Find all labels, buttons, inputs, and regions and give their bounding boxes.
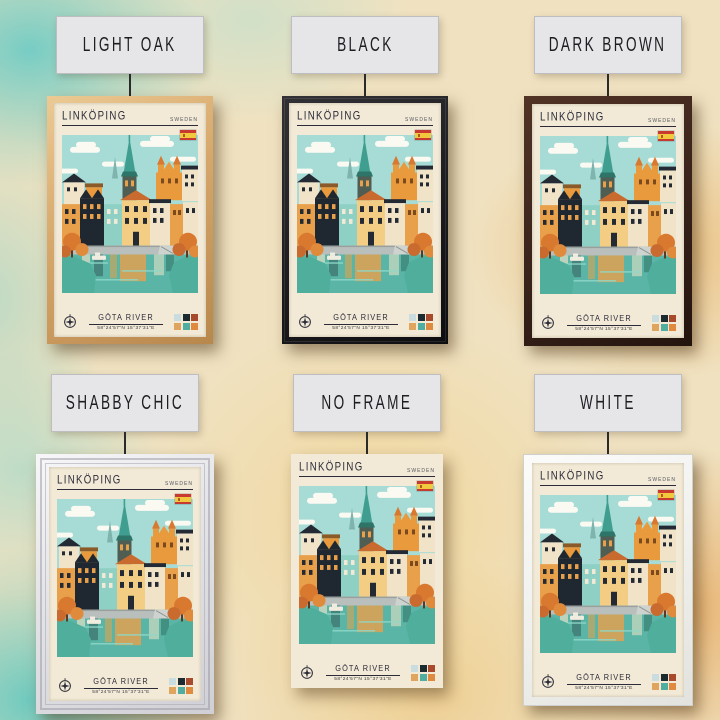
compass-icon [299, 665, 315, 681]
palette-swatch [183, 314, 190, 321]
poster-cell-none: NO FRAME LINKÖPING SWEDEN [278, 374, 456, 688]
poster-country: SWEDEN [648, 477, 676, 483]
spain-flag-icon [417, 481, 433, 491]
poster-frame: LINKÖPING SWEDEN [291, 454, 443, 688]
palette-swatch [661, 315, 668, 322]
poster-caption: GÖTA RIVER 58°24'57"N 15°37'31"E [316, 313, 406, 331]
palette-swatch [661, 324, 668, 331]
palette-swatches [174, 314, 198, 330]
poster-caption: GÖTA RIVER 58°24'57"N 15°37'31"E [76, 677, 166, 695]
poster-coordinates: 58°24'57"N 15°37'31"E [559, 686, 649, 691]
palette-swatch [420, 674, 427, 681]
palette-swatch [652, 315, 659, 322]
cityscape-illustration [297, 135, 433, 293]
poster-header: LINKÖPING SWEDEN [540, 112, 676, 127]
cityscape-illustration [57, 499, 193, 657]
poster-coordinates: 58°24'57"N 15°37'31"E [81, 326, 171, 331]
palette-swatch [411, 665, 418, 672]
hanging-wire [366, 432, 368, 454]
palette-swatch [428, 674, 435, 681]
poster-paper: LINKÖPING SWEDEN [54, 103, 206, 337]
palette-swatch [420, 665, 427, 672]
product-collage: LIGHT OAK LINKÖPING SWEDEN [0, 0, 720, 720]
cityscape-illustration [540, 136, 676, 294]
compass-icon [62, 314, 78, 330]
palette-swatch [178, 687, 185, 694]
palette-swatch [178, 678, 185, 685]
cityscape-illustration [299, 486, 435, 644]
variant-label: SHABBY CHIC [66, 391, 184, 415]
poster-header: LINKÖPING SWEDEN [297, 111, 433, 126]
poster-country: SWEDEN [165, 481, 193, 487]
poster-cell-dark-brown: DARK BROWN LINKÖPING SWEDEN [519, 16, 697, 346]
palette-swatch [652, 683, 659, 690]
poster-paper: LINKÖPING SWEDEN [532, 463, 684, 697]
palette-swatch [669, 324, 676, 331]
poster-coordinates: 58°24'57"N 15°37'31"E [559, 327, 649, 332]
palette-swatch [186, 678, 193, 685]
variant-label-box: SHABBY CHIC [51, 374, 199, 432]
poster-header: LINKÖPING SWEDEN [62, 111, 198, 126]
compass-icon [540, 674, 556, 690]
poster-footer: GÖTA RIVER 58°24'57"N 15°37'31"E [540, 673, 676, 691]
variant-label: NO FRAME [321, 391, 412, 415]
palette-swatches [169, 678, 193, 694]
poster-paper: LINKÖPING SWEDEN [49, 467, 201, 701]
poster-caption: GÖTA RIVER 58°24'57"N 15°37'31"E [318, 664, 408, 682]
palette-swatch [409, 323, 416, 330]
poster-subtitle: GÖTA RIVER [320, 313, 403, 322]
poster-coordinates: 58°24'57"N 15°37'31"E [76, 690, 166, 695]
palette-swatch [183, 323, 190, 330]
palette-swatch [669, 683, 676, 690]
palette-swatches [409, 314, 433, 330]
poster-cell-black: BLACK LINKÖPING SWEDEN [276, 16, 454, 344]
poster-subtitle: GÖTA RIVER [80, 677, 163, 686]
poster-coordinates: 58°24'57"N 15°37'31"E [318, 677, 408, 682]
variant-label-box: NO FRAME [293, 374, 441, 432]
variant-label: BLACK [337, 33, 394, 57]
palette-swatches [652, 315, 676, 331]
palette-swatch [661, 674, 668, 681]
poster-title: LINKÖPING [297, 110, 362, 123]
poster-cell-light-oak: LIGHT OAK LINKÖPING SWEDEN [41, 16, 219, 344]
poster-title: LINKÖPING [299, 461, 364, 474]
caption-divider [89, 324, 163, 325]
hanging-wire [364, 74, 366, 96]
poster-caption: GÖTA RIVER 58°24'57"N 15°37'31"E [559, 673, 649, 691]
variant-label-box: BLACK [291, 16, 439, 74]
poster-paper: LINKÖPING SWEDEN [289, 103, 441, 337]
poster-footer: GÖTA RIVER 58°24'57"N 15°37'31"E [540, 314, 676, 332]
palette-swatch [169, 678, 176, 685]
palette-swatch [411, 674, 418, 681]
palette-swatch [186, 687, 193, 694]
palette-swatch [418, 323, 425, 330]
palette-swatch [169, 687, 176, 694]
poster-frame: LINKÖPING SWEDEN [523, 454, 693, 706]
poster-cell-white: WHITE LINKÖPING SWEDEN [519, 374, 697, 706]
poster-footer: GÖTA RIVER 58°24'57"N 15°37'31"E [299, 664, 435, 682]
poster-footer: GÖTA RIVER 58°24'57"N 15°37'31"E [57, 677, 193, 695]
variant-label-box: WHITE [534, 374, 682, 432]
palette-swatch [426, 323, 433, 330]
hanging-wire [124, 432, 126, 454]
palette-swatch [191, 314, 198, 321]
palette-swatch [661, 683, 668, 690]
poster-title: LINKÖPING [57, 474, 122, 487]
poster-title: LINKÖPING [540, 470, 605, 483]
hanging-wire [607, 74, 609, 96]
poster-coordinates: 58°24'57"N 15°37'31"E [316, 326, 406, 331]
palette-swatches [652, 674, 676, 690]
poster-header: LINKÖPING SWEDEN [540, 471, 676, 486]
poster-subtitle: GÖTA RIVER [85, 313, 168, 322]
palette-swatch [409, 314, 416, 321]
palette-swatch [652, 674, 659, 681]
variant-label-box: LIGHT OAK [56, 16, 204, 74]
palette-swatch [669, 315, 676, 322]
poster-cell-shabby-chic: SHABBY CHIC LINKÖPING SWEDEN [36, 374, 214, 714]
spain-flag-icon [415, 130, 431, 140]
poster-footer: GÖTA RIVER 58°24'57"N 15°37'31"E [297, 313, 433, 331]
compass-icon [57, 678, 73, 694]
caption-divider [324, 324, 398, 325]
palette-swatch [174, 314, 181, 321]
palette-swatch [174, 323, 181, 330]
variant-label: WHITE [580, 391, 636, 415]
caption-divider [567, 684, 641, 685]
poster-frame: LINKÖPING SWEDEN [524, 96, 692, 346]
poster-frame: LINKÖPING SWEDEN [36, 454, 214, 714]
poster-paper: LINKÖPING SWEDEN [532, 104, 684, 338]
palette-swatch [418, 314, 425, 321]
poster-subtitle: GÖTA RIVER [563, 314, 646, 323]
hanging-wire [129, 74, 131, 96]
poster-subtitle: GÖTA RIVER [322, 664, 405, 673]
variant-label-box: DARK BROWN [534, 16, 682, 74]
cityscape-illustration [540, 495, 676, 653]
palette-swatch [426, 314, 433, 321]
hanging-wire [607, 432, 609, 454]
poster-footer: GÖTA RIVER 58°24'57"N 15°37'31"E [62, 313, 198, 331]
palette-swatch [191, 323, 198, 330]
spain-flag-icon [175, 494, 191, 504]
variant-label: DARK BROWN [549, 33, 667, 57]
poster-header: LINKÖPING SWEDEN [57, 475, 193, 490]
poster-title: LINKÖPING [540, 111, 605, 124]
poster-header: LINKÖPING SWEDEN [299, 462, 435, 477]
compass-icon [540, 315, 556, 331]
poster-country: SWEDEN [405, 117, 433, 123]
palette-swatch [652, 324, 659, 331]
cityscape-illustration [62, 135, 198, 293]
poster-caption: GÖTA RIVER 58°24'57"N 15°37'31"E [81, 313, 171, 331]
poster-caption: GÖTA RIVER 58°24'57"N 15°37'31"E [559, 314, 649, 332]
palette-swatches [411, 665, 435, 681]
poster-subtitle: GÖTA RIVER [563, 673, 646, 682]
caption-divider [326, 675, 400, 676]
poster-frame: LINKÖPING SWEDEN [282, 96, 448, 344]
caption-divider [84, 688, 158, 689]
variant-label: LIGHT OAK [83, 33, 177, 57]
spain-flag-icon [180, 130, 196, 140]
poster-paper: LINKÖPING SWEDEN [291, 454, 443, 688]
poster-country: SWEDEN [648, 118, 676, 124]
caption-divider [567, 325, 641, 326]
spain-flag-icon [658, 490, 674, 500]
poster-country: SWEDEN [407, 468, 435, 474]
palette-swatch [428, 665, 435, 672]
compass-icon [297, 314, 313, 330]
poster-title: LINKÖPING [62, 110, 127, 123]
poster-country: SWEDEN [170, 117, 198, 123]
palette-swatch [669, 674, 676, 681]
spain-flag-icon [658, 131, 674, 141]
poster-frame: LINKÖPING SWEDEN [47, 96, 213, 344]
